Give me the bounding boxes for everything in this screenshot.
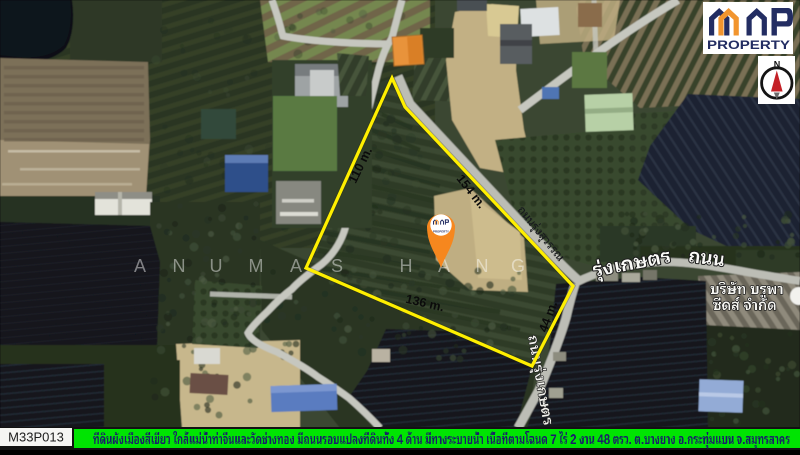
svg-text:S: S <box>331 256 343 276</box>
svg-text:M33P013: M33P013 <box>8 430 64 445</box>
svg-text:PROPERTY: PROPERTY <box>433 230 449 234</box>
svg-text:H: H <box>400 256 413 276</box>
svg-text:A: A <box>290 256 302 276</box>
svg-text:M: M <box>249 256 264 276</box>
svg-text:N: N <box>476 256 489 276</box>
svg-text:PROPERTY: PROPERTY <box>707 40 790 52</box>
svg-text:G: G <box>511 256 525 276</box>
svg-text:A: A <box>134 256 146 276</box>
svg-text:N: N <box>173 256 186 276</box>
svg-text:U: U <box>210 256 223 276</box>
